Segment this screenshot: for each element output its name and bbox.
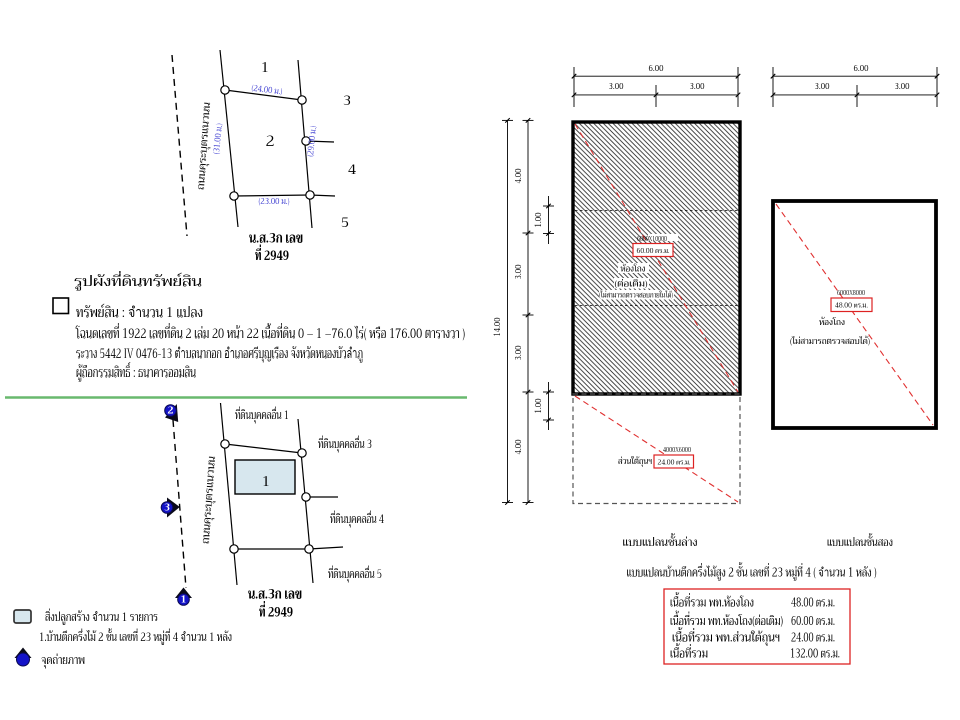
svg-text:3.00: 3.00 [895, 78, 910, 94]
svg-text:3: 3 [164, 501, 170, 517]
svg-text:(ไม่สามารถตรวจสอบภายในได้): (ไม่สามารถตรวจสอบภายในได้) [599, 289, 673, 303]
svg-text:สิ่งปลูกสร้าง จำนวน 1 รายการ: สิ่งปลูกสร้าง จำนวน 1 รายการ [45, 608, 158, 628]
svg-text:แบบแปลนชั้นล่าง: แบบแปลนชั้นล่าง [623, 533, 698, 553]
svg-text:24.00 ตร.ม.: 24.00 ตร.ม. [658, 456, 691, 468]
svg-text:3.00: 3.00 [815, 78, 830, 94]
svg-text:3: 3 [343, 89, 351, 113]
svg-text:ห้องโถง: ห้องโถง [819, 314, 845, 330]
svg-text:2: 2 [266, 129, 275, 155]
svg-text:2: 2 [168, 404, 174, 420]
svg-text:1: 1 [261, 56, 269, 80]
svg-text:5: 5 [341, 211, 349, 235]
svg-text:4.00: 4.00 [510, 169, 526, 184]
svg-text:จุดถ่ายภาพ: จุดถ่ายภาพ [41, 651, 85, 671]
svg-text:132.00 ตร.ม.: 132.00 ตร.ม. [790, 643, 840, 665]
svg-text:ผู้ถือกรรมสิทธิ์ : ธนาคารออมสิ: ผู้ถือกรรมสิทธิ์ : ธนาคารออมสิน [76, 361, 196, 385]
svg-text:3.00: 3.00 [690, 78, 705, 94]
svg-text:1: 1 [181, 593, 187, 609]
svg-text:(23.00 ม.): (23.00 ม.) [259, 194, 290, 209]
svg-text:ที่ดินบุคคลอื่น 4: ที่ดินบุคคลอื่น 4 [330, 510, 384, 530]
svg-text:รูปผังที่ดินทรัพย์สิน: รูปผังที่ดินทรัพย์สิน [74, 270, 202, 294]
svg-text:4.00: 4.00 [510, 440, 526, 455]
svg-text:ที่ดินบุคคลอื่น 5: ที่ดินบุคคลอื่น 5 [328, 565, 382, 585]
svg-text:1.00: 1.00 [530, 213, 546, 228]
svg-text:เนื้อที่รวม: เนื้อที่รวม [670, 641, 708, 664]
svg-text:60.00 ตร.ม.: 60.00 ตร.ม. [637, 245, 670, 257]
svg-text:14.00: 14.00 [489, 318, 505, 337]
svg-text:6.00: 6.00 [854, 60, 869, 76]
svg-text:ห้องโถง: ห้องโถง [621, 262, 646, 277]
svg-text:3.00: 3.00 [510, 265, 526, 280]
svg-text:3.00: 3.00 [510, 346, 526, 361]
svg-text:แบบแปลนบ้านตึกครึ่งไม้สูง 2 ชั: แบบแปลนบ้านตึกครึ่งไม้สูง 2 ชั้น เลขที่ … [627, 560, 877, 583]
svg-text:1.บ้านตึกครึ่งไม้ 2 ชั้น เลขที: 1.บ้านตึกครึ่งไม้ 2 ชั้น เลขที่ 23 หมู่ท… [39, 628, 232, 648]
svg-text:4000X6000: 4000X6000 [663, 445, 691, 456]
svg-text:1.00: 1.00 [530, 399, 546, 414]
svg-text:ที่ดินบุคคลอื่น 1: ที่ดินบุคคลอื่น 1 [235, 406, 289, 426]
svg-text:48.00 ตร.ม.: 48.00 ตร.ม. [835, 300, 868, 312]
svg-text:6.00: 6.00 [649, 60, 664, 76]
svg-text:3.00: 3.00 [609, 78, 624, 94]
svg-text:4: 4 [348, 158, 356, 182]
svg-text:1: 1 [262, 470, 270, 494]
svg-text:6000X8000: 6000X8000 [837, 288, 865, 299]
svg-text:ที่ 2949: ที่ 2949 [255, 244, 289, 268]
svg-text:แบบแปลนชั้นสอง: แบบแปลนชั้นสอง [827, 533, 893, 553]
svg-text:ส่วนใต้ถุนฯ: ส่วนใต้ถุนฯ [618, 454, 652, 469]
svg-text:(ไม่สามารถตรวจสอบได้): (ไม่สามารถตรวจสอบได้) [790, 333, 870, 349]
svg-text:ที่ 2949: ที่ 2949 [259, 601, 293, 625]
svg-text:ที่ดินบุคคลอื่น 3: ที่ดินบุคคลอื่น 3 [318, 435, 372, 455]
